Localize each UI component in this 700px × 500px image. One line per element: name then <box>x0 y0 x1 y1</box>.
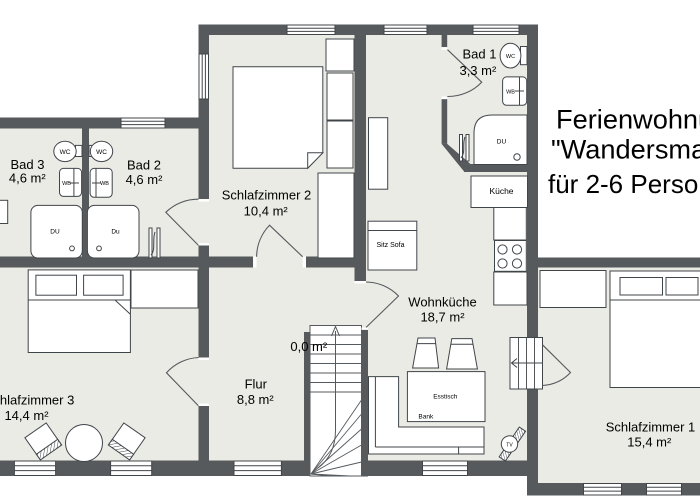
svg-text:10,4 m²: 10,4 m² <box>244 203 289 218</box>
svg-text:Ferienwohnung: Ferienwohnung <box>556 104 700 135</box>
svg-text:DU: DU <box>50 229 60 236</box>
svg-text:Bad 1: Bad 1 <box>463 47 497 62</box>
svg-text:Flur: Flur <box>245 377 268 392</box>
svg-text:4,6 m²: 4,6 m² <box>126 172 164 187</box>
svg-text:8,8 m²: 8,8 m² <box>237 392 275 407</box>
svg-text:Bank: Bank <box>418 414 434 421</box>
svg-text:Bad 2: Bad 2 <box>127 158 161 173</box>
svg-text:TV: TV <box>506 443 513 449</box>
svg-text:Küche: Küche <box>489 186 513 196</box>
svg-text:Schlafzimmer 3: Schlafzimmer 3 <box>0 393 74 408</box>
svg-text:Wohnküche: Wohnküche <box>408 295 476 310</box>
svg-text:3,3 m²: 3,3 m² <box>459 63 497 78</box>
svg-text:"Wandersmann": "Wandersmann" <box>551 134 700 165</box>
svg-text:Schlafzimmer 1: Schlafzimmer 1 <box>606 420 696 435</box>
svg-text:Esstisch: Esstisch <box>433 393 458 400</box>
svg-text:für 2-6 Personen: für 2-6 Personen <box>548 169 700 199</box>
svg-text:18,7 m²: 18,7 m² <box>420 310 465 325</box>
svg-text:WC: WC <box>60 149 71 156</box>
svg-text:Schlafzimmer 2: Schlafzimmer 2 <box>222 188 312 203</box>
svg-text:Du: Du <box>111 229 120 236</box>
svg-text:0,0 m²: 0,0 m² <box>290 339 328 354</box>
svg-text:4,6 m²: 4,6 m² <box>9 171 47 186</box>
svg-text:WC: WC <box>96 149 107 156</box>
svg-text:15,4 m²: 15,4 m² <box>627 435 672 450</box>
svg-text:WB: WB <box>506 90 515 96</box>
svg-text:DU: DU <box>497 139 507 146</box>
svg-text:WB: WB <box>100 181 109 187</box>
svg-text:14,4 m²: 14,4 m² <box>4 408 49 423</box>
svg-text:WC: WC <box>506 54 515 60</box>
svg-text:WB: WB <box>62 181 71 187</box>
svg-text:Sitz Sofa: Sitz Sofa <box>376 242 404 249</box>
